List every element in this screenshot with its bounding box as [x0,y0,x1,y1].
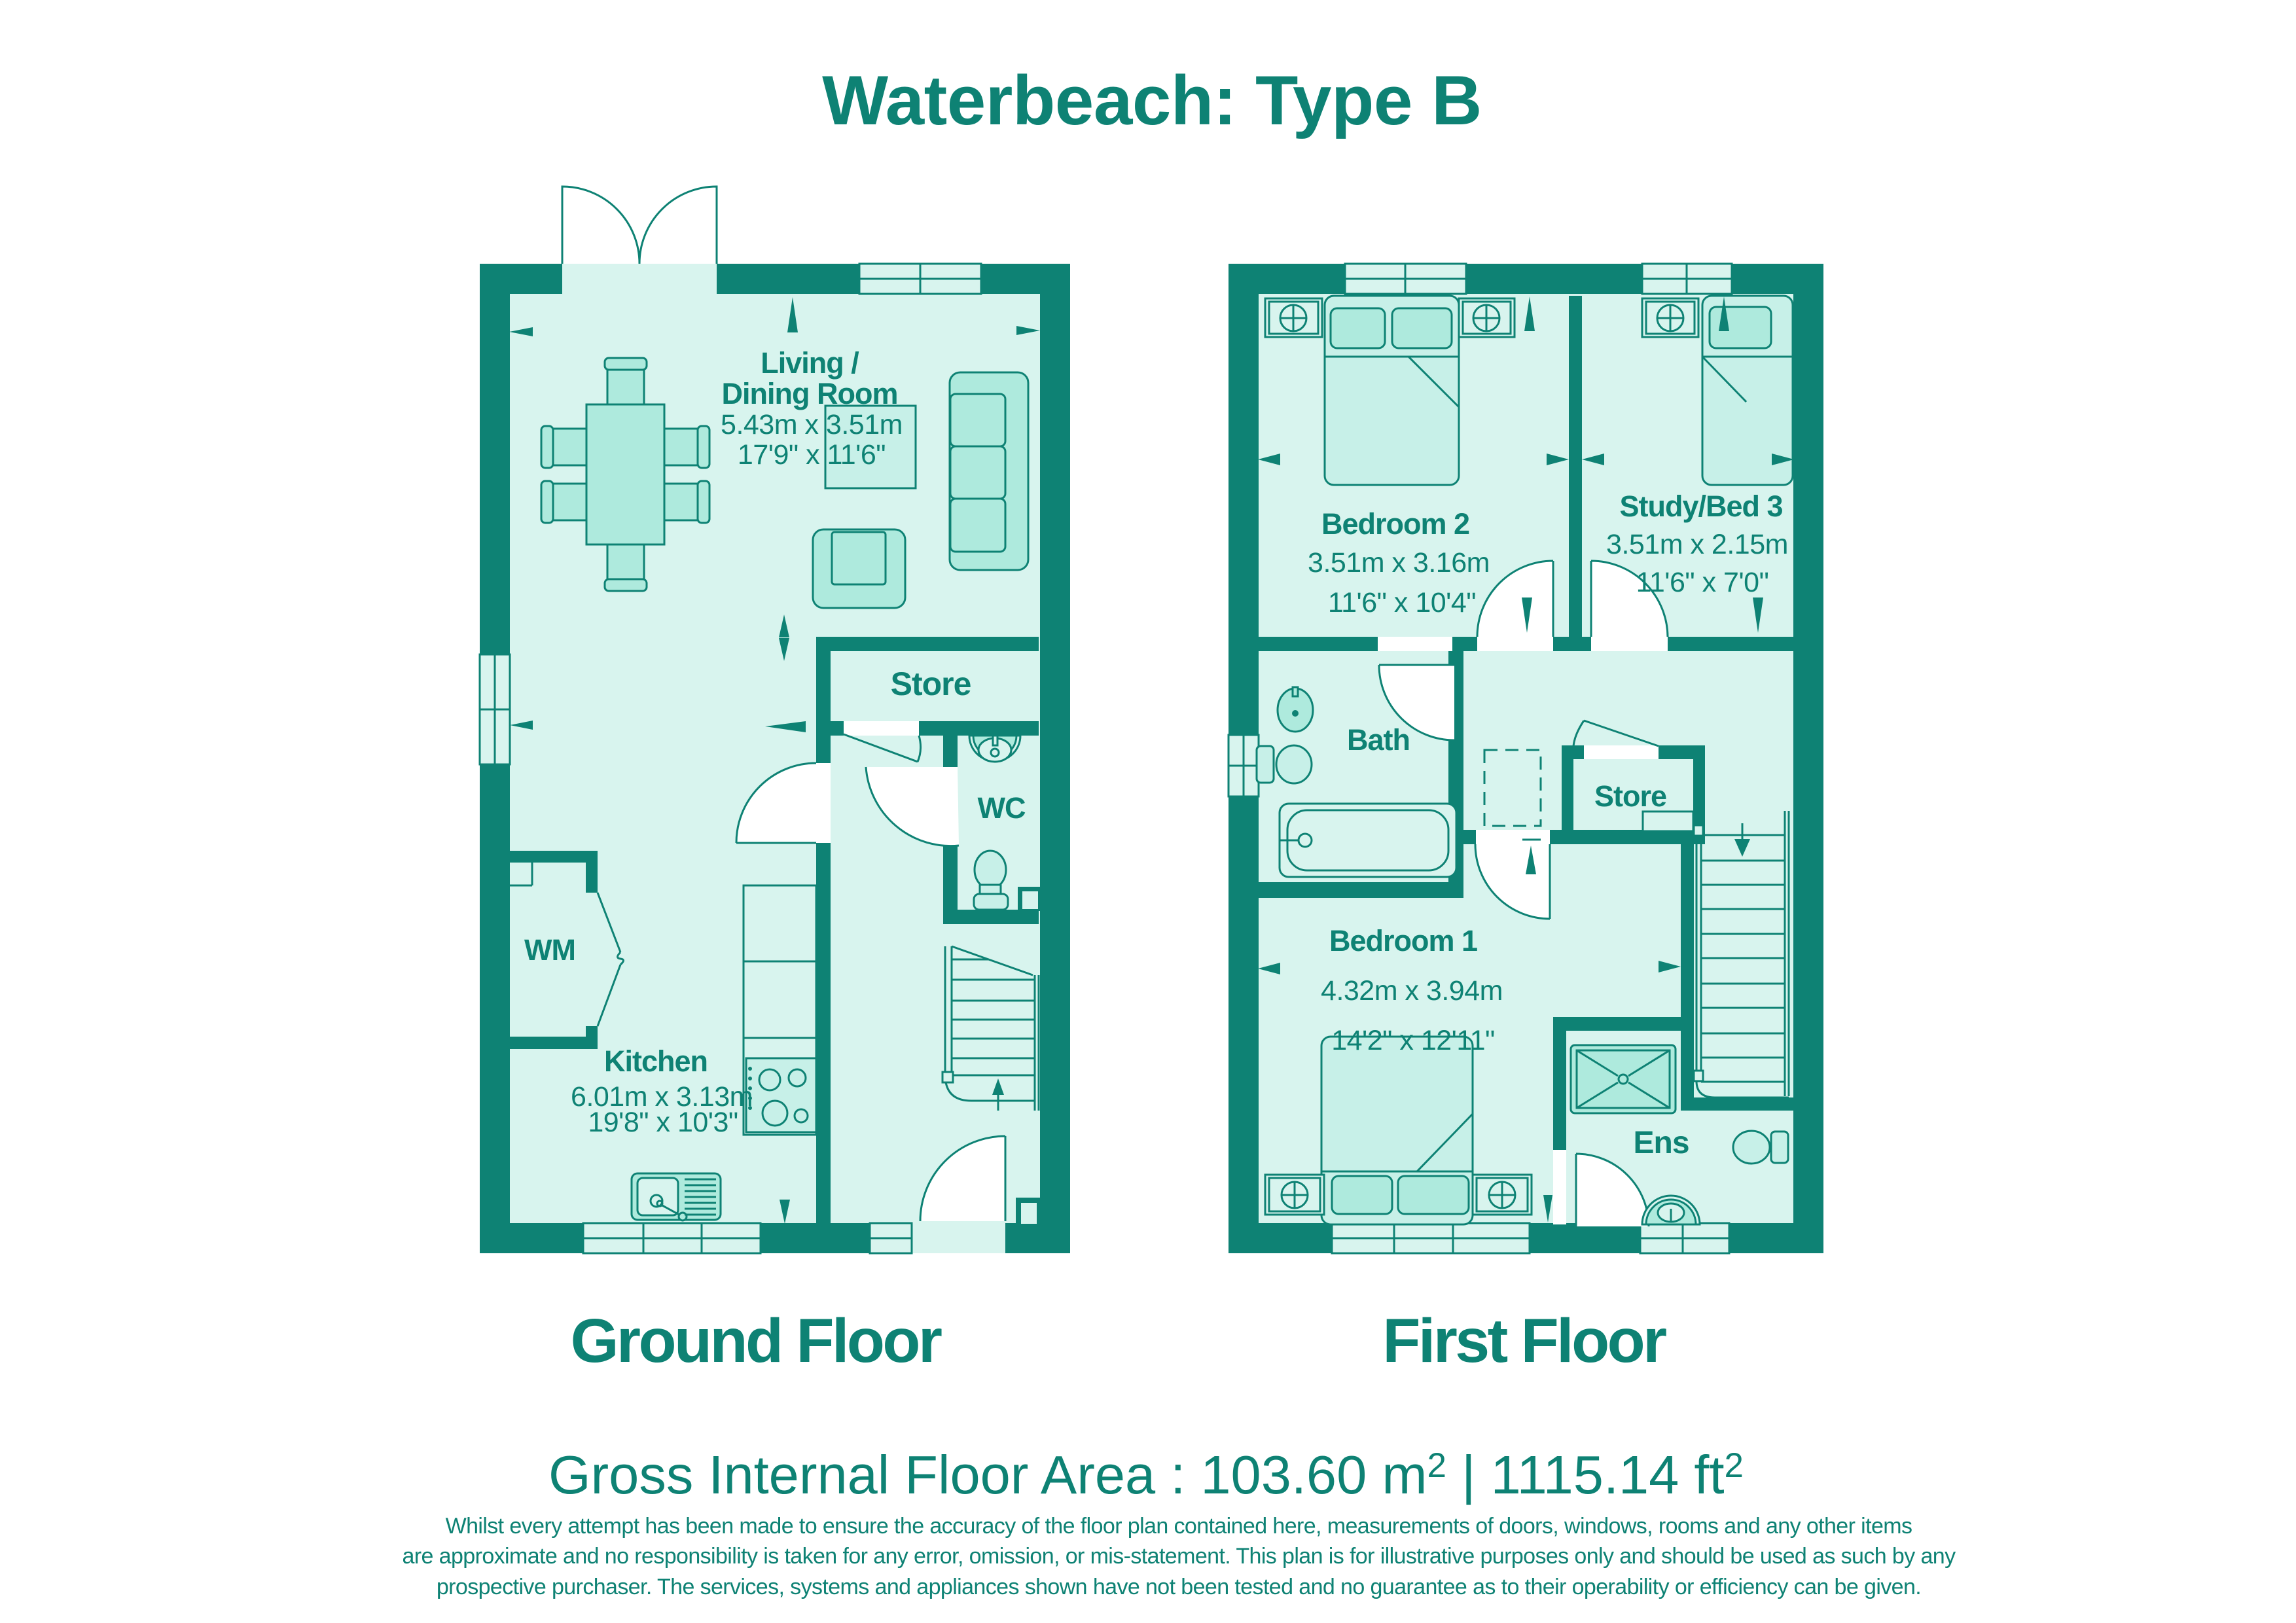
svg-text:Ens: Ens [1633,1126,1689,1160]
svg-text:are approximate and no respons: are approximate and no responsibility is… [403,1544,1956,1569]
svg-text:3.51m x 3.16m: 3.51m x 3.16m [1308,547,1490,579]
svg-text:14'2" x 12'11": 14'2" x 12'11" [1331,1025,1495,1056]
svg-text:Kitchen: Kitchen [604,1044,708,1078]
svg-text:Living /: Living / [761,346,859,380]
svg-text:17'9" x 11'6": 17'9" x 11'6" [738,439,886,471]
svg-text:First Floor: First Floor [1382,1306,1666,1376]
svg-text:4.32m x 3.94m: 4.32m x 3.94m [1321,975,1503,1007]
svg-text:Store: Store [891,666,971,702]
svg-text:Bath: Bath [1347,723,1410,757]
svg-text:5.43m x 3.51m: 5.43m x 3.51m [721,409,903,440]
svg-text:Store: Store [1594,779,1666,813]
svg-text:Bedroom 1: Bedroom 1 [1329,924,1477,957]
svg-text:Whilst every attempt has been: Whilst every attempt has been made to en… [446,1514,1912,1539]
svg-text:WC: WC [978,791,1026,825]
svg-text:19'8" x 10'3": 19'8" x 10'3" [588,1107,738,1138]
svg-text:11'6" x 10'4": 11'6" x 10'4" [1328,587,1476,618]
svg-text:WM: WM [524,933,575,967]
svg-text:Study/Bed 3: Study/Bed 3 [1619,490,1782,523]
svg-text:11'6" x 7'0": 11'6" x 7'0" [1636,567,1769,598]
svg-text:Waterbeach: Type B: Waterbeach: Type B [822,61,1482,139]
svg-text:3.51m x 2.15m: 3.51m x 2.15m [1606,529,1788,560]
svg-text:Dining Room: Dining Room [722,377,898,410]
svg-text:Gross Internal Floor Area : 1: Gross Internal Floor Area : 103.60 m2 | … [548,1444,1744,1505]
svg-text:Bedroom 2: Bedroom 2 [1321,507,1469,541]
svg-text:Ground Floor: Ground Floor [571,1306,942,1376]
svg-text:prospective purchaser. The ser: prospective purchaser. The services, sys… [437,1575,1921,1599]
